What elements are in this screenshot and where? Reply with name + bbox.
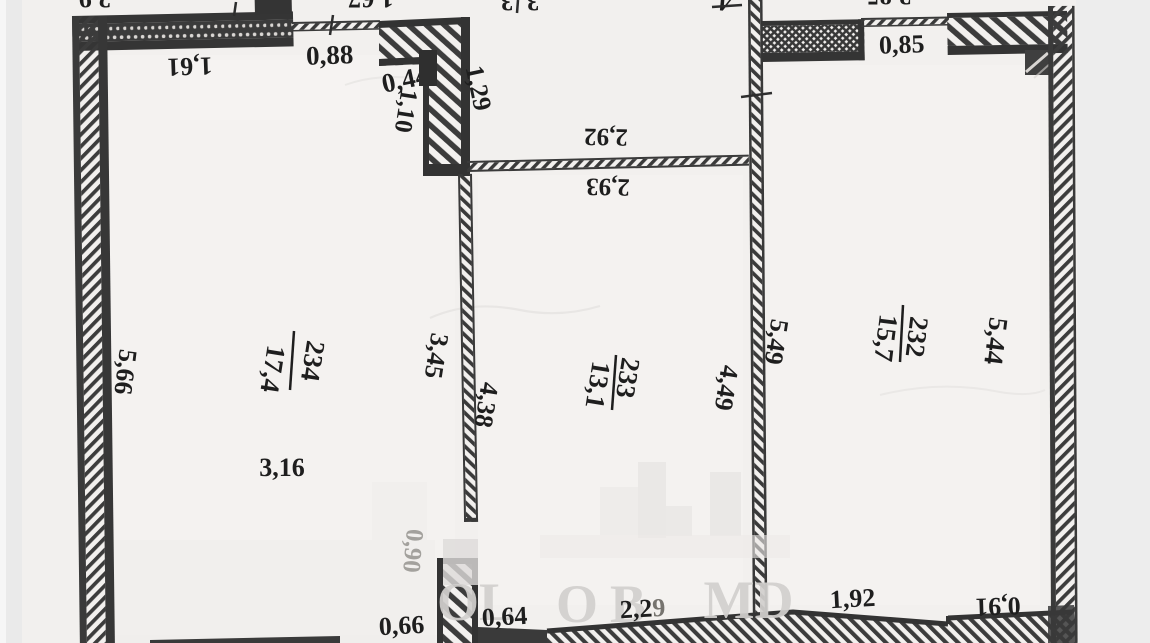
svg-text:3: 3 bbox=[501, 0, 514, 16]
svg-text:234: 234 bbox=[295, 339, 331, 384]
svg-text:3: 3 bbox=[527, 0, 540, 16]
svg-text:5,66: 5,66 bbox=[108, 348, 142, 397]
svg-text:0,90: 0,90 bbox=[397, 528, 428, 574]
svg-text:0,88: 0,88 bbox=[306, 39, 354, 71]
svg-text:O: O bbox=[437, 572, 479, 632]
svg-text:M: M bbox=[704, 570, 755, 630]
svg-text:2,93: 2,93 bbox=[586, 173, 630, 201]
svg-text:2,29: 2,29 bbox=[619, 593, 666, 624]
svg-text:3,16: 3,16 bbox=[259, 453, 305, 482]
svg-text:0,85: 0,85 bbox=[878, 29, 924, 60]
svg-text:2,85: 2,85 bbox=[866, 0, 912, 10]
svg-text:4: 4 bbox=[717, 0, 733, 18]
svg-text:0,91: 0,91 bbox=[975, 591, 1021, 622]
svg-text:15,7: 15,7 bbox=[868, 313, 904, 364]
svg-text:D: D bbox=[755, 570, 794, 630]
svg-text:5,44: 5,44 bbox=[978, 316, 1014, 367]
svg-text:0,64: 0,64 bbox=[481, 601, 528, 632]
svg-text:1,92: 1,92 bbox=[829, 583, 876, 614]
svg-text:O: O bbox=[556, 574, 598, 634]
svg-text:2,92: 2,92 bbox=[584, 123, 628, 151]
svg-text:0,66: 0,66 bbox=[378, 610, 425, 641]
svg-text:2,9: 2,9 bbox=[79, 0, 112, 13]
svg-text:1,61: 1,61 bbox=[167, 51, 213, 82]
svg-text:1,67: 1,67 bbox=[348, 0, 394, 13]
svg-text:232: 232 bbox=[900, 315, 935, 359]
